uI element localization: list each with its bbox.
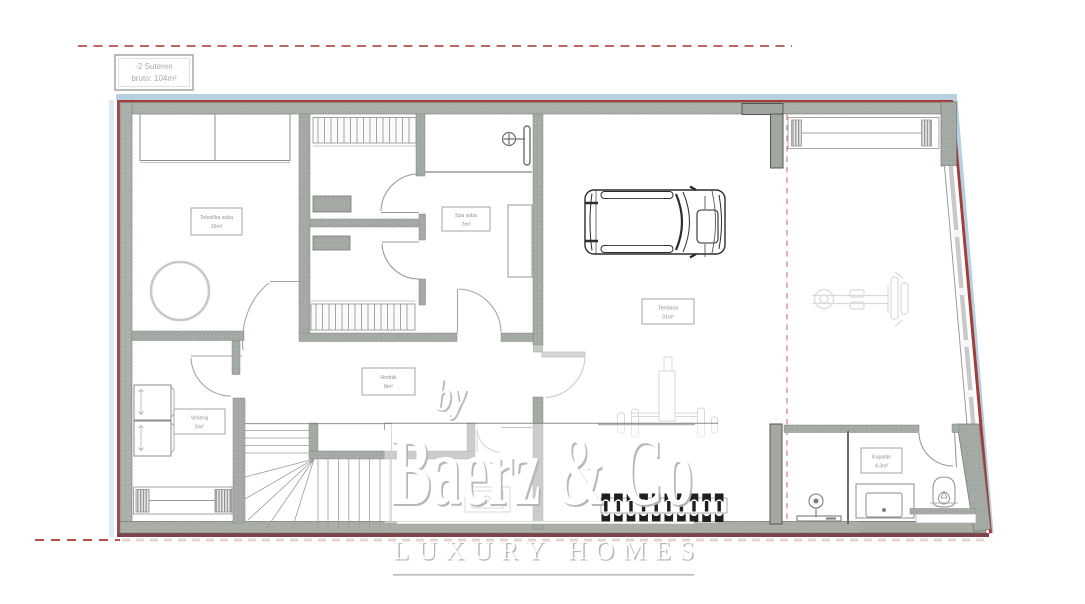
svg-text:31m²: 31m² (662, 315, 674, 321)
svg-text:-2 Suteren: -2 Suteren (135, 62, 172, 71)
svg-text:7m²: 7m² (462, 222, 471, 228)
svg-text:Kupatilo: Kupatilo (872, 455, 891, 461)
svg-text:16m²: 16m² (211, 224, 223, 230)
svg-text:by: by (435, 371, 466, 420)
svg-text:Spa soba: Spa soba (455, 213, 477, 219)
svg-text:5m²: 5m² (195, 425, 204, 431)
svg-text:Teretana: Teretana (658, 306, 678, 312)
svg-text:bruto: 104m²: bruto: 104m² (131, 74, 177, 83)
svg-text:Hodnik: Hodnik (380, 375, 397, 381)
svg-text:8m²: 8m² (384, 384, 393, 390)
svg-text:Baerz & Co: Baerz & Co (391, 415, 693, 526)
svg-text:Vešeraj: Vešeraj (191, 416, 208, 422)
svg-text:Tehnička soba: Tehnička soba (200, 215, 233, 221)
svg-text:4.3m²: 4.3m² (875, 464, 889, 470)
